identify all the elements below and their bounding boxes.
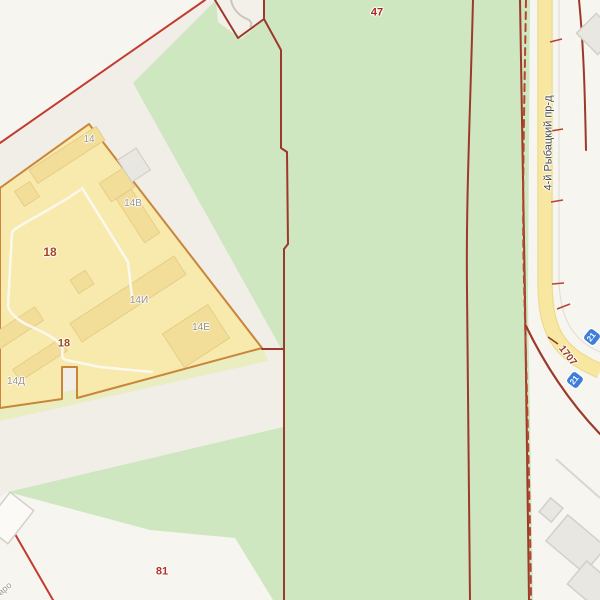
- map-tile-layer: [0, 0, 600, 600]
- map-canvas[interactable]: 471818811414В14И14Е14Д4-й Рыбацкий пр-д1…: [0, 0, 600, 600]
